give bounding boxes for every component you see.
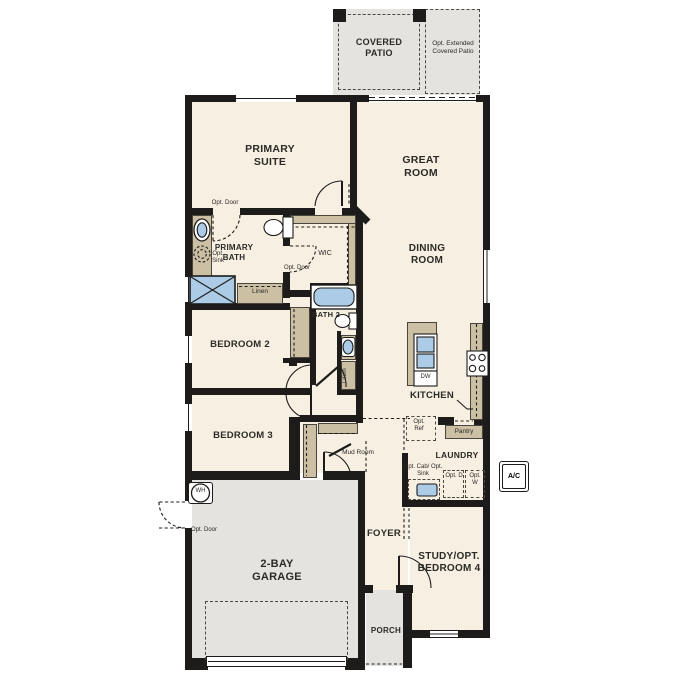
wall: [283, 212, 290, 246]
sliding-door-track: [369, 100, 476, 101]
wall: [356, 214, 363, 290]
covered-patio-label: COVERED PATIO: [341, 37, 417, 59]
great-room-label: GREAT ROOM: [389, 154, 453, 180]
window: [185, 336, 192, 363]
window: [430, 631, 458, 637]
ac-unit-inner: A/C: [502, 464, 526, 489]
window: [185, 404, 192, 431]
extended-patio-label: Opt. Extended Covered Patio: [426, 40, 480, 56]
wall: [310, 283, 316, 385]
wall: [240, 208, 315, 215]
garage-door: [206, 656, 347, 667]
wall: [356, 283, 363, 423]
wall: [185, 471, 300, 480]
opt-washer-label: Opt. W: [466, 473, 484, 488]
kitchen-counter: [470, 323, 483, 420]
window: [484, 250, 490, 303]
door-opt-garage: [159, 502, 185, 528]
linen-label: Linen: [237, 288, 283, 296]
opt-door-opening: [185, 501, 192, 528]
mud-room-label: Mud Room: [341, 449, 375, 457]
wall: [342, 208, 357, 215]
foyer-label: FOYER: [362, 528, 406, 540]
wall: [438, 417, 454, 425]
pantry-label: Pantry: [445, 428, 483, 436]
wall: [283, 290, 313, 297]
wic-shelf: [348, 223, 356, 290]
garage-bay-outline: [205, 601, 348, 660]
opt-sink-box: [408, 479, 440, 500]
wall: [402, 500, 490, 507]
study-label: STUDY/OPT. BEDROOM 4: [410, 551, 488, 575]
wall: [283, 358, 316, 363]
mud-room-bench: [318, 423, 358, 434]
opt-door-label-suite: Opt. Door: [202, 199, 248, 207]
ac-label: A/C: [508, 473, 520, 480]
garage-label: 2-BAY GARAGE: [235, 558, 319, 585]
opt-dryer-label: Opt. D: [445, 473, 463, 480]
ac-unit: A/C: [499, 461, 529, 492]
wall: [185, 303, 290, 310]
floor-plan: A/C: [0, 0, 687, 687]
window: [185, 277, 192, 302]
wall-bedroom-divider: [185, 388, 312, 395]
porch-label: PORCH: [367, 626, 405, 636]
opt-ref-label: Opt. Ref: [409, 419, 429, 434]
laundry-label: LAUNDRY: [427, 450, 487, 460]
window: [236, 95, 296, 102]
wall: [185, 208, 213, 215]
wall-exterior-left: [185, 95, 192, 670]
bedroom2-label: BEDROOM 2: [204, 339, 276, 351]
linen2-label: Linen: [342, 362, 355, 389]
opt-door-label-garage: Opt. Door: [191, 527, 217, 534]
wall: [357, 95, 369, 102]
water-heater-label: WH: [190, 488, 211, 495]
dining-room-label: DINING ROOM: [395, 243, 459, 267]
mud-room-closet: [303, 424, 317, 478]
wall: [345, 658, 365, 670]
wall: [363, 585, 373, 593]
wall: [289, 358, 297, 366]
wall: [300, 415, 363, 422]
opt-cab-sink-label: Opt. Cab/ Opt. Sink: [402, 464, 444, 479]
wic-shelf: [290, 215, 356, 224]
dishwasher-label: DW: [414, 374, 437, 381]
opt-door-label-wic: Opt. Door: [284, 265, 310, 272]
wall: [350, 102, 357, 214]
wic-label: WIC: [310, 250, 340, 259]
bedroom2-closet: [290, 307, 310, 358]
floor-foyer: [365, 505, 408, 590]
opt-sink-label: Opt. Sink: [206, 251, 230, 266]
bedroom3-label: BEDROOM 3: [207, 430, 279, 442]
primary-suite-label: PRIMARY SUITE: [228, 143, 312, 169]
patio-post: [333, 9, 346, 22]
patio-post: [413, 9, 426, 22]
bath2-label: BATH 2: [311, 310, 341, 319]
kitchen-label: KITCHEN: [405, 390, 459, 402]
bath2-vanity: [341, 335, 356, 360]
wall: [358, 471, 365, 670]
wall: [289, 417, 300, 475]
